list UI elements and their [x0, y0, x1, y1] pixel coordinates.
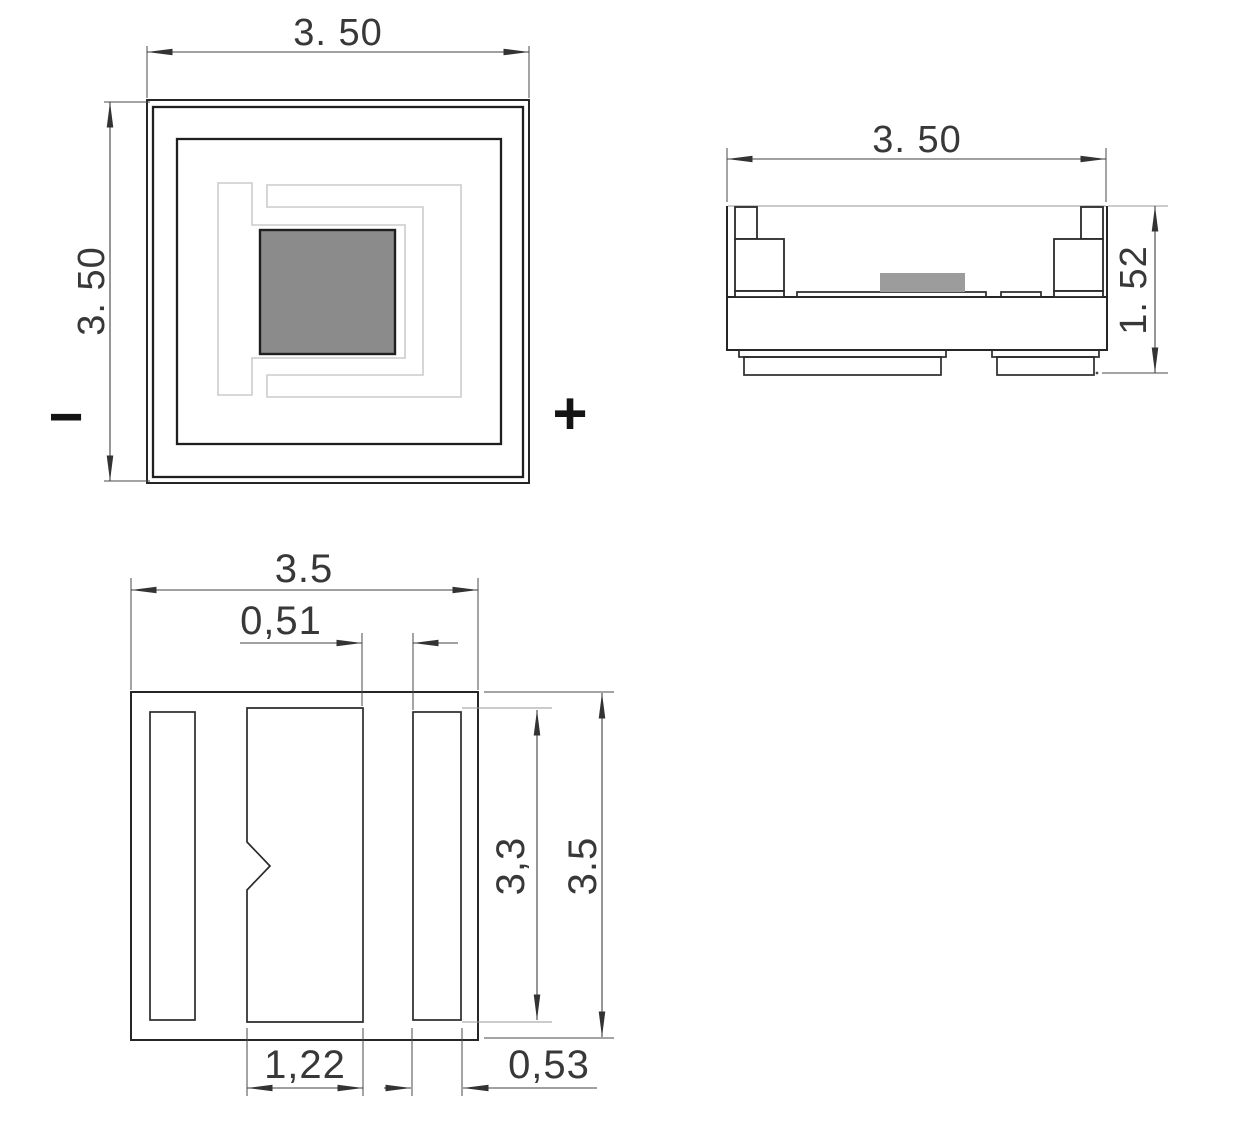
pad-layout-width-dimension-label: 3.5 — [275, 547, 334, 591]
side-view-height-dimension-label: 1. 52 — [1113, 245, 1155, 335]
drawing-background — [0, 0, 1237, 1121]
top-view-width-dimension-label: 3. 50 — [293, 12, 383, 54]
side-pad-width-dimension-label: 0,53 — [508, 1043, 590, 1087]
center-pad-width-dimension-label: 1,22 — [264, 1043, 346, 1087]
pad-gap-dimension-label: 0,51 — [240, 599, 322, 643]
mechanical-drawing-page: 3. 50 3. 50 − + 3. 50 — [0, 0, 1237, 1121]
mechanical-drawing-canvas: 3. 50 3. 50 − + 3. 50 — [0, 0, 1237, 1121]
top-view-height-dimension-label: 3. 50 — [71, 246, 113, 336]
side-view-led-die — [880, 273, 965, 292]
negative-polarity-symbol: − — [48, 383, 83, 450]
led-die — [260, 230, 395, 354]
side-view-width-dimension-label: 3. 50 — [872, 119, 962, 161]
positive-polarity-symbol: + — [552, 380, 587, 447]
pad-layout-height-dimension-label: 3.5 — [561, 837, 605, 896]
pad-height-dimension-label: 3,3 — [489, 837, 533, 896]
